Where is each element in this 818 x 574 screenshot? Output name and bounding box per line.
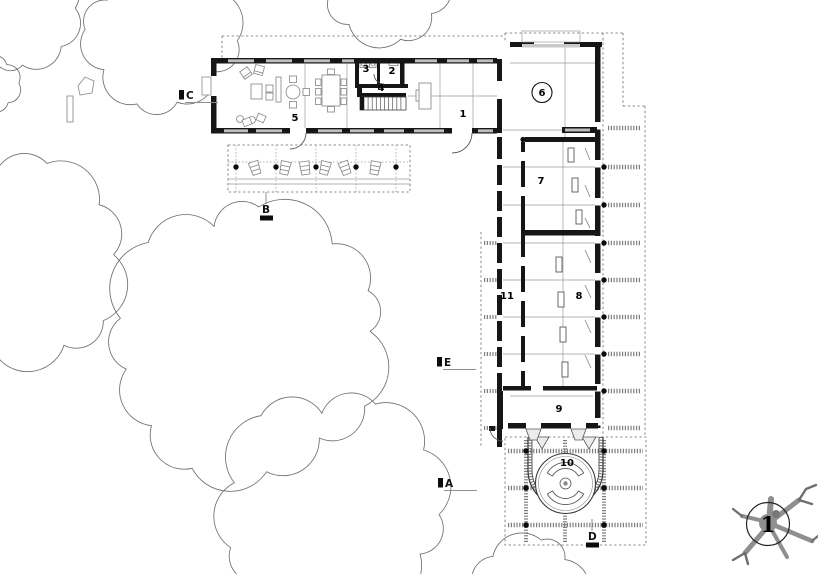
stair xyxy=(357,93,406,110)
dining-table xyxy=(322,75,340,106)
terrace-column xyxy=(273,164,278,169)
room-number-10: 10 xyxy=(560,458,574,469)
tree-canopy xyxy=(109,199,389,491)
terrace-column xyxy=(313,164,318,169)
svg-text:C: C xyxy=(186,90,194,102)
tree-canopy xyxy=(0,56,21,113)
pool-column xyxy=(601,448,606,453)
room-number-3: 3 xyxy=(363,64,370,75)
section-marker-E: E xyxy=(437,357,476,370)
pool-court xyxy=(508,437,643,543)
bay-window xyxy=(202,77,211,95)
round-table xyxy=(286,85,300,99)
pergola-column xyxy=(601,314,606,319)
side-table xyxy=(251,84,262,99)
floor-plan-svg: 1234567891011 CBEAD 1 xyxy=(0,0,818,574)
room-number-11: 11 xyxy=(500,291,514,302)
tree-canopy xyxy=(470,533,590,574)
pool-column xyxy=(523,485,528,490)
pergola-column xyxy=(601,164,606,169)
interior-grid-lines xyxy=(305,47,595,396)
room-number-5: 5 xyxy=(292,113,299,124)
pergola-column xyxy=(601,202,606,207)
logo-page-number: 1 xyxy=(761,512,776,537)
section-marker-D: D xyxy=(586,519,599,548)
pool-column xyxy=(523,448,528,453)
section-marker-B: B xyxy=(260,192,273,221)
pool-column xyxy=(523,522,528,527)
pool-column xyxy=(601,522,606,527)
room-number-1: 1 xyxy=(460,109,467,120)
site-rock-outline xyxy=(78,77,94,95)
pergola-column xyxy=(601,351,606,356)
pergola-column xyxy=(601,277,606,282)
svg-text:D: D xyxy=(588,531,597,543)
section-marker-A: A xyxy=(438,478,477,491)
terrace-column xyxy=(233,164,238,169)
tree-canopy xyxy=(0,0,81,71)
room-number-4: 4 xyxy=(378,83,385,94)
balcony-pergola-bands xyxy=(484,128,640,428)
room-number-6: 6 xyxy=(539,88,546,99)
site-post-outline xyxy=(67,96,73,122)
cabinet xyxy=(276,77,281,102)
floor-plan-canvas: 1234567891011 CBEAD 1 xyxy=(0,0,818,574)
pool-stair-wedge-right xyxy=(582,437,596,449)
terrace xyxy=(228,145,410,192)
tree-canopy xyxy=(81,0,243,115)
pergola-column xyxy=(601,240,606,245)
fireplace xyxy=(419,83,431,109)
tree-canopy xyxy=(315,0,458,48)
room-number-7: 7 xyxy=(538,176,545,187)
room-number-8: 8 xyxy=(576,291,583,302)
lounge-chair xyxy=(319,160,332,175)
lounge-chair xyxy=(279,161,291,176)
site-objects xyxy=(67,77,94,122)
lounge-chair xyxy=(369,161,381,176)
room-number-9: 9 xyxy=(556,404,563,415)
tree-canopy xyxy=(214,393,451,574)
room-number-labels: 1234567891011 xyxy=(292,64,583,469)
room-number-2: 2 xyxy=(389,66,396,77)
terrace-column xyxy=(393,164,398,169)
pool-column xyxy=(601,485,606,490)
terrace-column xyxy=(353,164,358,169)
svg-text:A: A xyxy=(445,478,454,490)
lounge-chair xyxy=(338,160,352,176)
branch-logo: 1 xyxy=(733,485,818,564)
svg-text:E: E xyxy=(444,357,451,369)
pergola-column xyxy=(601,388,606,393)
lounge-chair xyxy=(299,161,311,175)
furniture-layer xyxy=(237,61,592,377)
svg-text:B: B xyxy=(262,204,270,216)
lounge-chair xyxy=(248,160,262,175)
